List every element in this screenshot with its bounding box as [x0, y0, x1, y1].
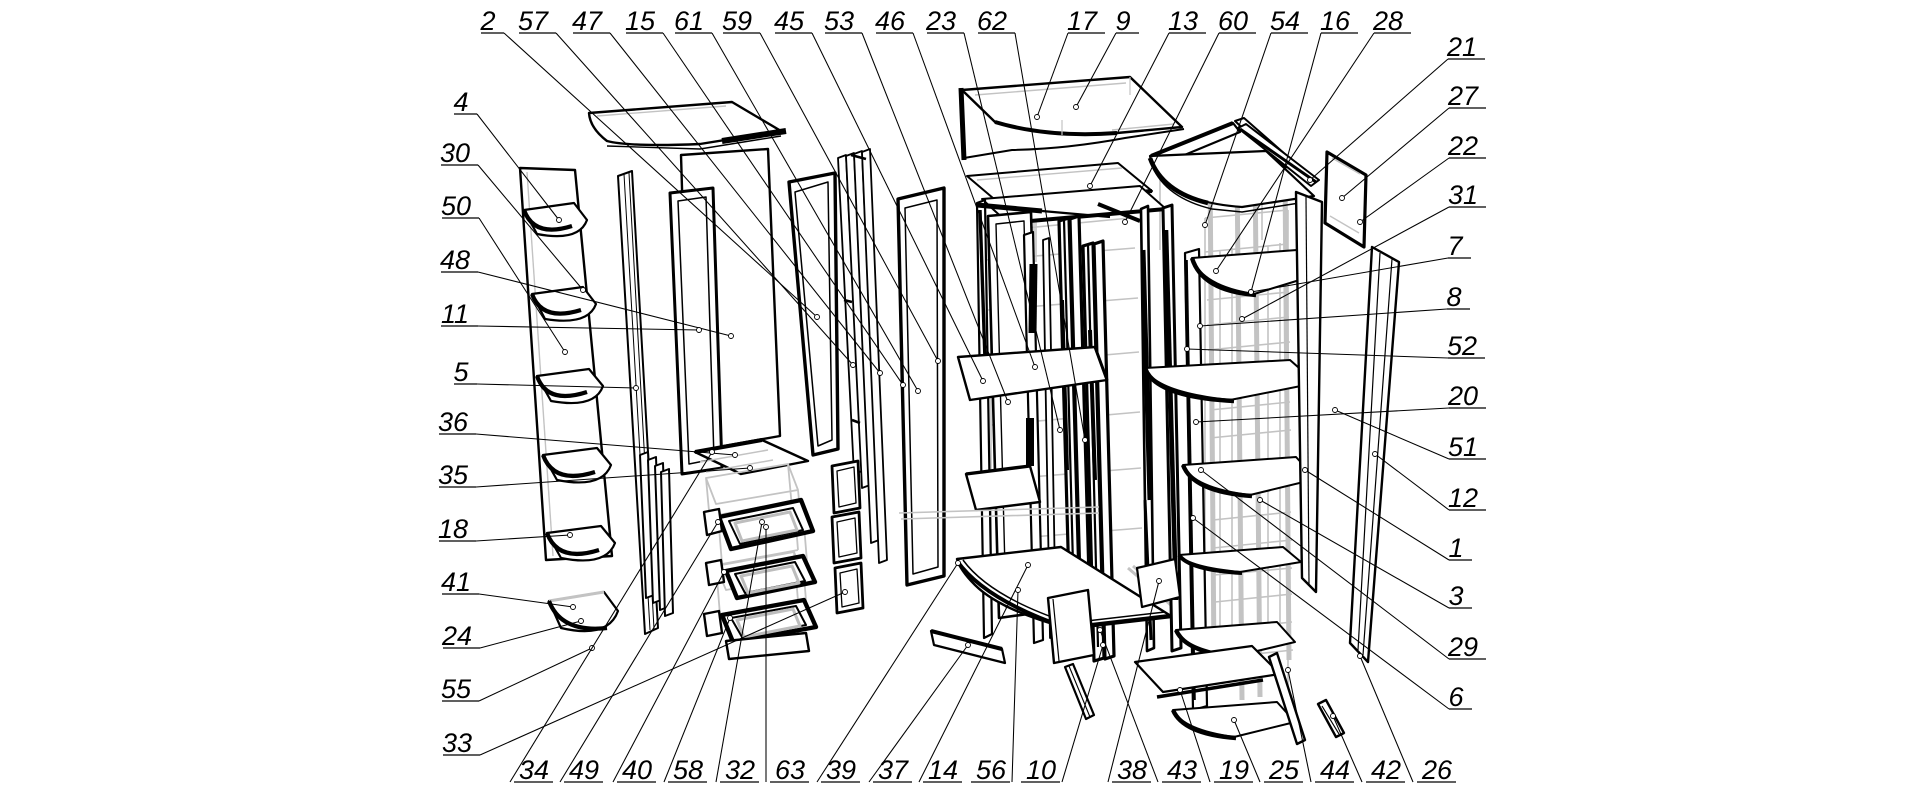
svg-text:63: 63: [775, 755, 805, 785]
svg-text:17: 17: [1067, 6, 1098, 36]
svg-text:42: 42: [1371, 755, 1401, 785]
svg-text:25: 25: [1268, 755, 1300, 785]
svg-text:7: 7: [1447, 231, 1463, 261]
svg-text:62: 62: [977, 6, 1007, 36]
svg-text:58: 58: [673, 755, 703, 785]
svg-text:6: 6: [1448, 682, 1464, 712]
svg-text:12: 12: [1448, 483, 1478, 513]
svg-text:16: 16: [1320, 6, 1351, 36]
svg-text:43: 43: [1167, 755, 1197, 785]
svg-text:36: 36: [438, 407, 469, 437]
svg-text:40: 40: [622, 755, 652, 785]
svg-text:35: 35: [438, 460, 469, 490]
svg-text:11: 11: [441, 299, 469, 329]
svg-text:23: 23: [925, 6, 956, 36]
svg-text:4: 4: [453, 87, 468, 117]
svg-text:29: 29: [1447, 632, 1478, 662]
svg-text:41: 41: [441, 567, 471, 597]
svg-text:59: 59: [722, 6, 752, 36]
svg-text:38: 38: [1117, 755, 1147, 785]
svg-text:5: 5: [453, 357, 469, 387]
svg-text:27: 27: [1447, 81, 1479, 111]
svg-text:44: 44: [1320, 755, 1350, 785]
svg-text:28: 28: [1372, 6, 1403, 36]
svg-text:20: 20: [1447, 381, 1478, 411]
svg-text:22: 22: [1447, 131, 1478, 161]
svg-text:30: 30: [440, 138, 470, 168]
svg-text:55: 55: [441, 674, 472, 704]
svg-text:3: 3: [1448, 581, 1463, 611]
svg-text:13: 13: [1168, 6, 1198, 36]
svg-text:48: 48: [440, 245, 470, 275]
svg-text:18: 18: [438, 514, 468, 544]
svg-text:50: 50: [441, 191, 471, 221]
svg-text:60: 60: [1218, 6, 1248, 36]
svg-text:53: 53: [824, 6, 854, 36]
svg-text:51: 51: [1448, 432, 1478, 462]
svg-text:15: 15: [625, 6, 656, 36]
svg-text:47: 47: [572, 6, 603, 36]
svg-text:2: 2: [479, 6, 495, 36]
svg-text:21: 21: [1446, 32, 1477, 62]
svg-text:37: 37: [878, 755, 909, 785]
svg-text:52: 52: [1447, 331, 1477, 361]
svg-text:54: 54: [1270, 6, 1300, 36]
svg-text:10: 10: [1026, 755, 1056, 785]
svg-text:9: 9: [1115, 6, 1130, 36]
svg-text:1: 1: [1448, 533, 1463, 563]
svg-text:33: 33: [442, 728, 472, 758]
svg-text:61: 61: [674, 6, 704, 36]
svg-text:56: 56: [976, 755, 1007, 785]
svg-text:45: 45: [774, 6, 805, 36]
svg-text:8: 8: [1446, 282, 1461, 312]
svg-text:19: 19: [1219, 755, 1249, 785]
svg-text:24: 24: [441, 621, 472, 651]
svg-text:14: 14: [928, 755, 958, 785]
svg-text:31: 31: [1448, 180, 1478, 210]
svg-text:26: 26: [1421, 755, 1453, 785]
svg-text:32: 32: [725, 755, 755, 785]
svg-text:39: 39: [826, 755, 856, 785]
svg-text:57: 57: [518, 6, 549, 36]
svg-text:46: 46: [875, 6, 906, 36]
